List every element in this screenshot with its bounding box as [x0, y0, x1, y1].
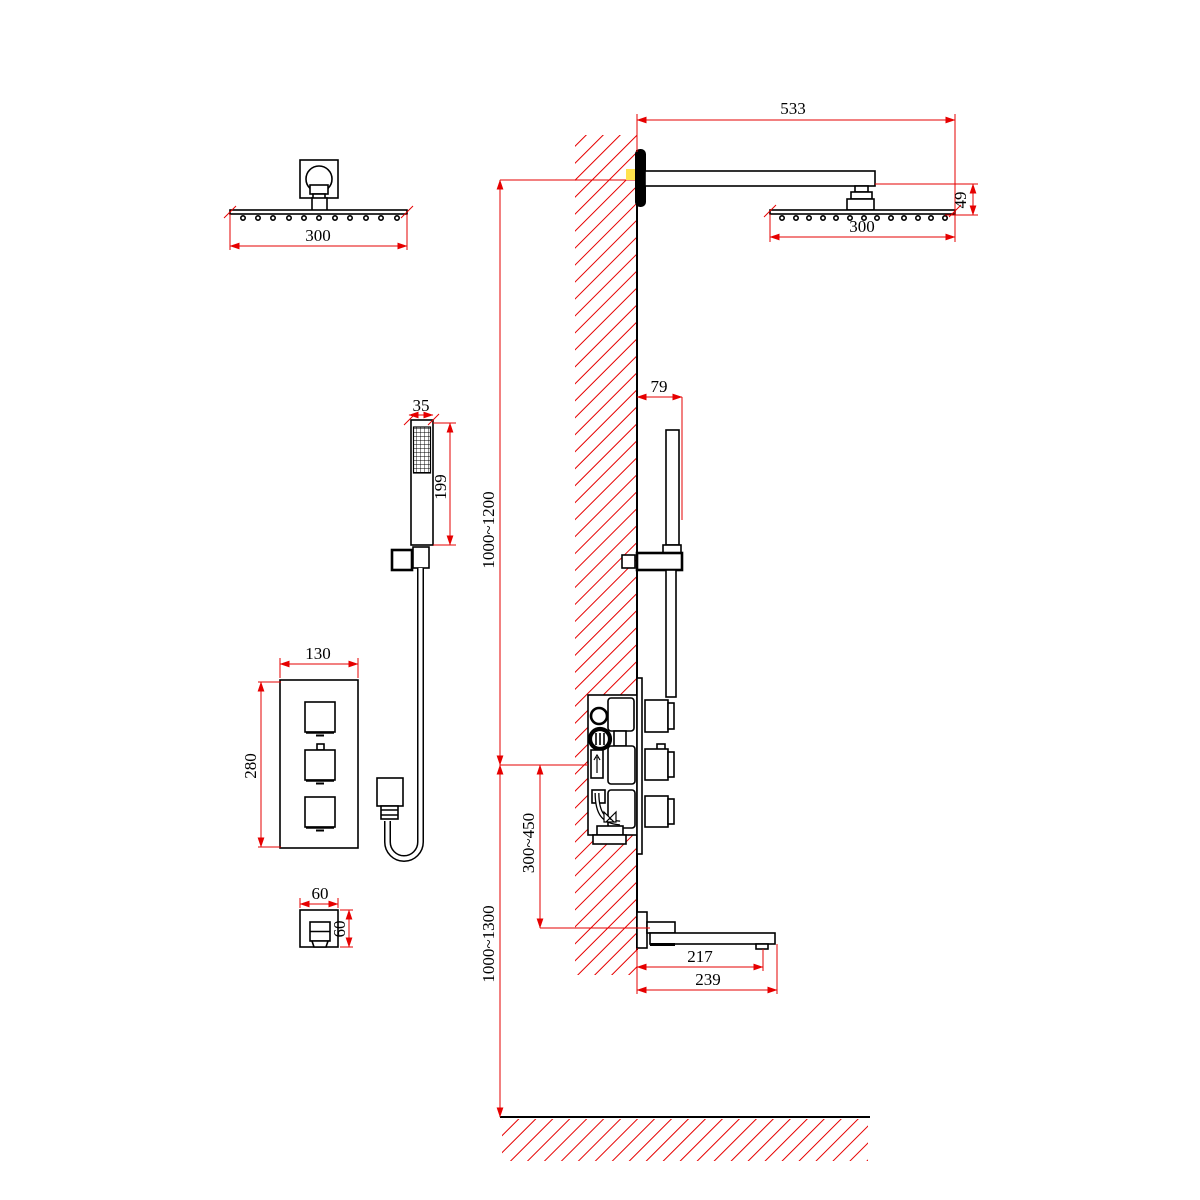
wall-outlet-side-view [377, 778, 403, 819]
dim-total-reach: 239 [695, 970, 721, 989]
rain-head-front-view: 300 [224, 160, 413, 250]
dim-outlet-reach: 217 [687, 947, 713, 966]
outlet-hex-nut [381, 806, 398, 819]
dim-hand-shower-length: 199 [431, 474, 450, 500]
panel-knob-middle [305, 744, 335, 784]
valve-inlet-top [591, 708, 607, 724]
panel-knob-top [305, 702, 335, 736]
spout-neck [647, 922, 675, 933]
wand-connector [413, 547, 429, 568]
valve-trim-plate [637, 678, 642, 854]
ball-joint-base [847, 199, 874, 210]
dim-arm-length: 533 [780, 99, 806, 118]
dim-side-head-width: 300 [849, 217, 875, 236]
dim-wall-offset: 79 [651, 377, 668, 396]
bracket-wall-anchor [622, 555, 635, 568]
wand-side [666, 430, 679, 545]
dim-panel-width: 130 [305, 644, 331, 663]
in-wall-connector [626, 169, 636, 180]
spout-underside [650, 943, 675, 946]
outlet-body [377, 778, 403, 806]
panel-knob-bottom [305, 797, 335, 831]
supply-tube [666, 570, 676, 697]
spout-outlet [756, 944, 768, 949]
outlet-front-nut [312, 941, 328, 947]
dim-valve-to-spout: 300~450 [519, 813, 538, 873]
valve-cartridge-mid [608, 746, 635, 784]
wall-bracket [392, 550, 412, 570]
floor-section [500, 1117, 870, 1161]
dim-lower-height: 1000~1300 [479, 905, 498, 982]
head-stem [312, 198, 327, 211]
nozzle-row [241, 216, 399, 220]
technical-drawing-canvas: 300 533 49 300 [0, 0, 1200, 1200]
valve-base-top [597, 826, 623, 835]
head-plate [230, 210, 407, 214]
rain-head-side-view: 533 49 300 [500, 99, 978, 242]
spray-face [414, 427, 431, 473]
tub-spout-side-view: 217 239 [637, 912, 777, 994]
dim-outlet-height: 60 [330, 921, 349, 938]
spout-body [650, 933, 775, 944]
spout-flange [637, 912, 647, 948]
valve-knob-bottom [645, 796, 674, 827]
control-panel-front-view: 130 280 [241, 644, 358, 848]
wall-outlet-front-view: 60 60 [300, 884, 353, 947]
ball-joint-mid [851, 192, 872, 199]
shower-arm [645, 171, 875, 186]
valve-stop [614, 731, 626, 746]
ball-joint-top [855, 186, 868, 192]
dim-upper-height: 1000~1200 [479, 491, 498, 568]
valve-knob-middle [645, 744, 674, 780]
concealed-valve-side-view [588, 678, 674, 854]
shower-installation-diagram: 300 533 49 300 [0, 0, 1200, 1200]
dim-outlet-width: 60 [312, 884, 329, 903]
valve-cartridge-top [608, 698, 634, 731]
dim-front-head-width: 300 [305, 226, 331, 245]
dim-panel-height: 280 [241, 753, 260, 779]
head-plate-side [770, 210, 955, 214]
mount-elbow [310, 185, 328, 194]
floor-hatching [502, 1119, 868, 1161]
valve-knob-top [645, 700, 674, 732]
slide-bracket [637, 553, 682, 570]
hand-shower-front-view: 35 199 [392, 396, 456, 570]
dim-hand-shower-width: 35 [413, 396, 430, 415]
valve-base-bottom [593, 835, 626, 844]
